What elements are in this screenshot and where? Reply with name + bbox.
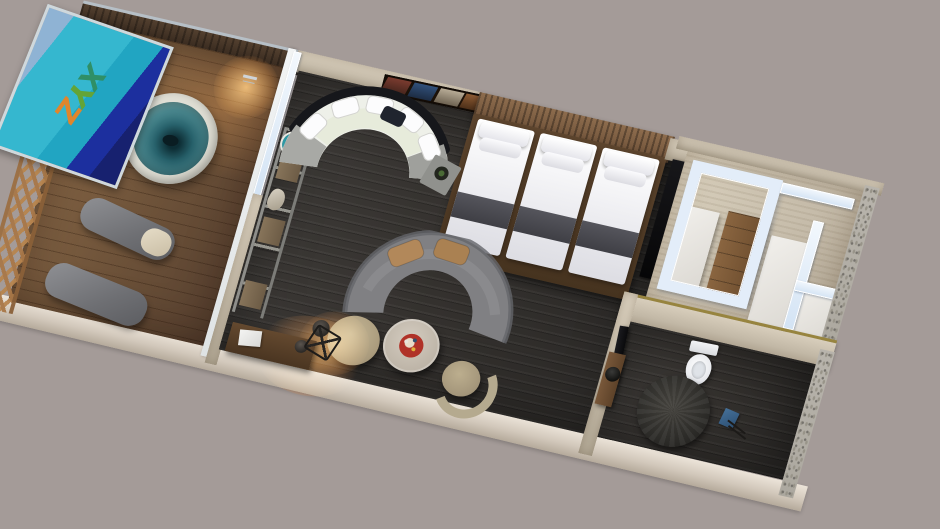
- suite-floorplan: XYZ: [8, 22, 879, 485]
- decor-tray: [396, 331, 426, 359]
- canopy-logo: XYZ: [48, 58, 113, 127]
- shelf-board: [239, 280, 268, 310]
- desk-paper: [238, 329, 262, 347]
- render-stage: XYZ: [0, 0, 940, 529]
